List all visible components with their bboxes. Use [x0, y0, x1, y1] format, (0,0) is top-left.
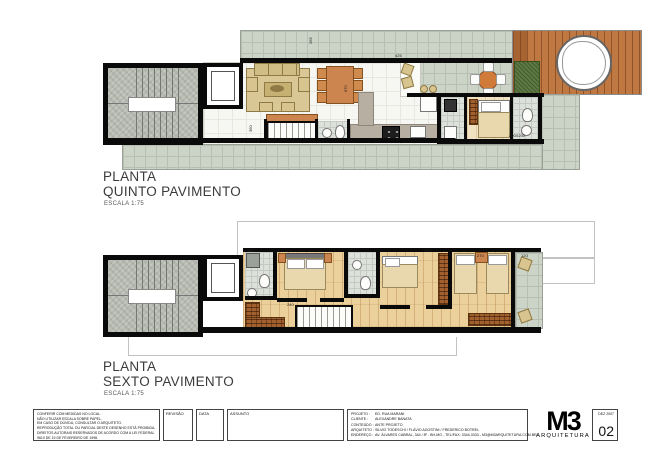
- patio-table: [478, 70, 498, 90]
- bed-blanket: [382, 264, 418, 288]
- kitchen-sink: [410, 126, 426, 138]
- sink: [322, 128, 332, 138]
- bed-pillow: [287, 259, 305, 269]
- dimension-label: 425: [395, 54, 402, 58]
- refrigerator: [420, 96, 437, 112]
- wall: [538, 93, 542, 144]
- endereco-label: ENDEREÇO :: [351, 433, 375, 438]
- terrace-tiles-bottom: [122, 144, 543, 170]
- wall: [426, 305, 452, 309]
- dimension-label: 265: [309, 37, 313, 44]
- stool: [420, 85, 428, 93]
- dimension-label: 200X200: [509, 134, 525, 138]
- stairwell-block-6: [103, 255, 203, 337]
- jacuzzi-basin: [562, 41, 606, 85]
- dining-chair: [353, 68, 363, 79]
- wall: [344, 252, 348, 298]
- sheet-number: 02: [598, 424, 614, 438]
- sheet-number-box: DEZ 2007 02: [592, 409, 618, 441]
- toilet: [522, 108, 533, 122]
- projection-outline: [128, 337, 457, 356]
- wall-bottom-6: [203, 327, 541, 333]
- info-row-endereco: ENDEREÇO : AV. ÁLVARES CABRAL, 344 / 8º …: [351, 433, 524, 438]
- wall: [264, 119, 267, 141]
- plan6-title: PLANTA SEXTO PAVIMENTO: [103, 359, 234, 389]
- dimension-label: 150: [247, 249, 254, 253]
- dining-table: [326, 66, 354, 104]
- plan6-title-line2: SEXTO PAVIMENTO: [103, 374, 234, 389]
- bed-blanket: [478, 112, 510, 138]
- wall: [320, 298, 344, 302]
- dimension-label: 360: [249, 125, 253, 132]
- stairwell-block: [103, 63, 203, 145]
- wardrobe: [469, 99, 478, 125]
- m3-logo: M3 ARQUITETURA: [536, 410, 590, 442]
- bed-pillow: [385, 258, 400, 267]
- wall-service-bottom: [437, 139, 544, 144]
- dimension-label: 120: [521, 254, 528, 258]
- bed-pillow: [481, 102, 501, 112]
- plan5-title-line1: PLANTA: [103, 169, 241, 184]
- plan6-title-line1: PLANTA: [103, 359, 234, 374]
- m3-logo-mark: M3: [536, 410, 590, 433]
- toilet: [360, 276, 371, 290]
- armchair-left: [246, 77, 258, 92]
- plan6-scale: ESCALA 1:75: [104, 391, 144, 397]
- dimension-label: 240: [287, 303, 294, 307]
- revisao-label: REVISÃO: [164, 410, 192, 417]
- dining-chair: [317, 92, 327, 103]
- elevator-shaft-6: [203, 255, 243, 301]
- shower: [246, 253, 260, 268]
- terrace-tiles-right: [541, 94, 580, 170]
- stair-landing: [128, 289, 176, 304]
- titleblock-info: PROJETO : ED. RUA MARANI CLIENTE : ALEXA…: [347, 409, 528, 441]
- toilet: [259, 274, 270, 288]
- wall: [511, 252, 515, 327]
- dimension-label: 270: [477, 254, 484, 258]
- wall-top-living: [240, 58, 512, 63]
- kitchen-counter-island: [358, 92, 374, 126]
- m3-logo-name: ARQUITETURA: [536, 433, 590, 439]
- plan5-scale: ESCALA 1:75: [104, 201, 144, 207]
- planter-green: [514, 61, 540, 94]
- elevator-cab: [211, 71, 235, 101]
- sheet-date: DEZ 2007: [598, 412, 614, 416]
- dimension-label: 670: [344, 85, 348, 92]
- dining-chair: [353, 80, 363, 91]
- bed-pillow: [488, 255, 507, 265]
- patio-chair: [496, 74, 506, 85]
- assunto-label: ASSUNTO: [228, 410, 343, 417]
- sink: [352, 260, 362, 270]
- dining-chair: [317, 68, 327, 79]
- bed-pillow: [456, 255, 475, 265]
- toilet: [335, 125, 345, 139]
- nightstand: [324, 253, 332, 263]
- dining-chair: [317, 80, 327, 91]
- sofa: [254, 63, 300, 76]
- coffee-table-tray: [270, 85, 284, 92]
- data-label: DATA: [197, 410, 223, 417]
- wardrobe: [468, 313, 514, 326]
- endereco-value: AV. ÁLVARES CABRAL, 344 / 8º - BH-MG - T…: [375, 433, 537, 438]
- titleblock-notes: CONFERIR COM MEDIDAS NO LOCAL. NÃO UTILI…: [33, 409, 160, 441]
- titleblock-revisao: REVISÃO: [163, 409, 193, 441]
- plan5-title-line2: QUINTO PAVIMENTO: [103, 184, 241, 199]
- titleblock-data: DATA: [196, 409, 224, 441]
- wall-service-top: [407, 93, 544, 97]
- wall: [245, 296, 277, 300]
- wall: [348, 294, 380, 298]
- wall: [464, 95, 467, 143]
- side-chair-left: [259, 102, 273, 112]
- note-line: DIREITOS AUTORAIS RESERVADOS DE ACORDO C…: [37, 431, 156, 436]
- elevator-shaft: [203, 63, 243, 109]
- wall: [437, 93, 441, 144]
- armchair-right: [298, 77, 310, 92]
- side-chair-right: [281, 102, 295, 112]
- patio-chair: [470, 74, 480, 85]
- wall: [273, 252, 277, 298]
- drawing-sheet: 425 670 265 360 200X200 PLANTA QUINTO PA…: [0, 0, 650, 459]
- nightstand: [278, 253, 286, 263]
- note-line: 9610 DE 19 DE FEVEREIRO DE 1998.: [37, 436, 156, 441]
- washer: [444, 99, 457, 112]
- dimension-label: 325: [424, 249, 431, 253]
- elevator-cab: [211, 263, 235, 293]
- wall-top-6: [243, 248, 541, 252]
- stool: [429, 85, 437, 93]
- patio-chair: [483, 62, 494, 72]
- wall: [380, 305, 410, 309]
- plan5-title: PLANTA QUINTO PAVIMENTO: [103, 169, 241, 199]
- wall-bottom-main: [103, 138, 455, 143]
- stair-landing: [128, 97, 176, 112]
- wall: [376, 252, 380, 298]
- wall: [448, 252, 452, 307]
- bed-pillow: [306, 259, 324, 269]
- titleblock-assunto: ASSUNTO: [227, 409, 344, 441]
